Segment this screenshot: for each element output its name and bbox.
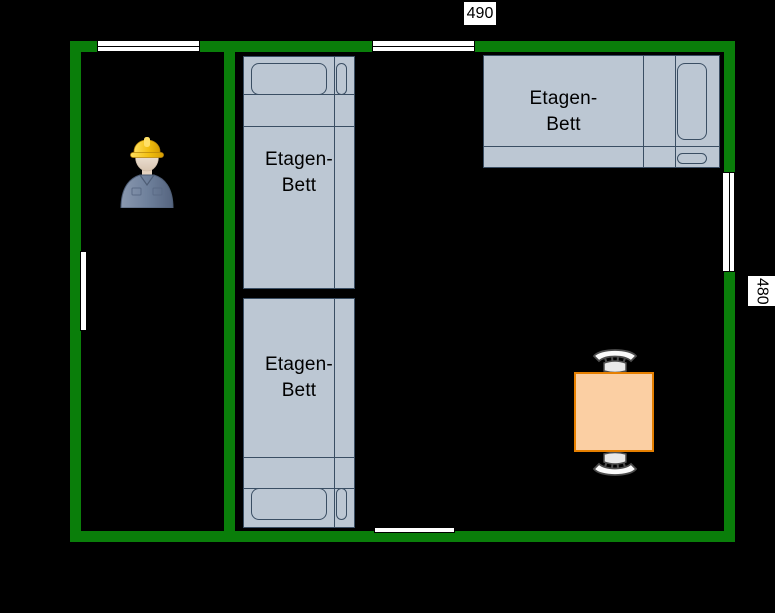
chair-top-icon <box>592 346 638 373</box>
bunk-bed-middle-bottom: Etagen- Bett <box>243 298 355 528</box>
window-right-wall <box>722 172 735 272</box>
bed-pillow-small <box>677 153 707 164</box>
square-table <box>574 372 654 452</box>
wall-right <box>724 41 735 542</box>
window-left-wall <box>80 251 87 331</box>
dimension-label-width: 490 <box>464 2 496 25</box>
bed-label-line1: Etagen- <box>530 86 598 112</box>
bed-label-line1: Etagen- <box>265 352 333 378</box>
bed-label-line2: Bett <box>546 112 581 138</box>
bunk-bed-top-right: Etagen- Bett <box>483 55 720 168</box>
bed-label-line1: Etagen- <box>265 147 333 173</box>
window-midline <box>729 173 730 271</box>
bed-label: Etagen- Bett <box>484 56 643 167</box>
bed-fold-line <box>244 457 354 458</box>
bed-label: Etagen- Bett <box>244 57 354 288</box>
bed-pillow <box>677 63 707 140</box>
floor-plan-canvas: Etagen- Bett Etagen- Bett Etagen- Bett <box>0 0 775 613</box>
bed-pillow-small <box>336 488 347 520</box>
window-midline <box>98 46 199 47</box>
wall-interior <box>224 41 235 542</box>
bed-pillow <box>251 488 327 520</box>
construction-worker-icon <box>117 126 177 208</box>
bed-fold-line <box>643 56 644 167</box>
chair-bottom-icon <box>592 452 638 479</box>
window-bottom-wall <box>374 527 455 533</box>
bed-label: Etagen- Bett <box>244 299 354 457</box>
bed-label-line2: Bett <box>282 378 317 404</box>
window-top-left <box>97 40 200 52</box>
window-midline <box>373 46 474 47</box>
bunk-bed-middle-top: Etagen- Bett <box>243 56 355 289</box>
dimension-label-height: 480 <box>748 276 775 306</box>
window-top-right <box>372 40 475 52</box>
bed-fold-line <box>675 56 676 167</box>
bed-label-line2: Bett <box>282 173 317 199</box>
